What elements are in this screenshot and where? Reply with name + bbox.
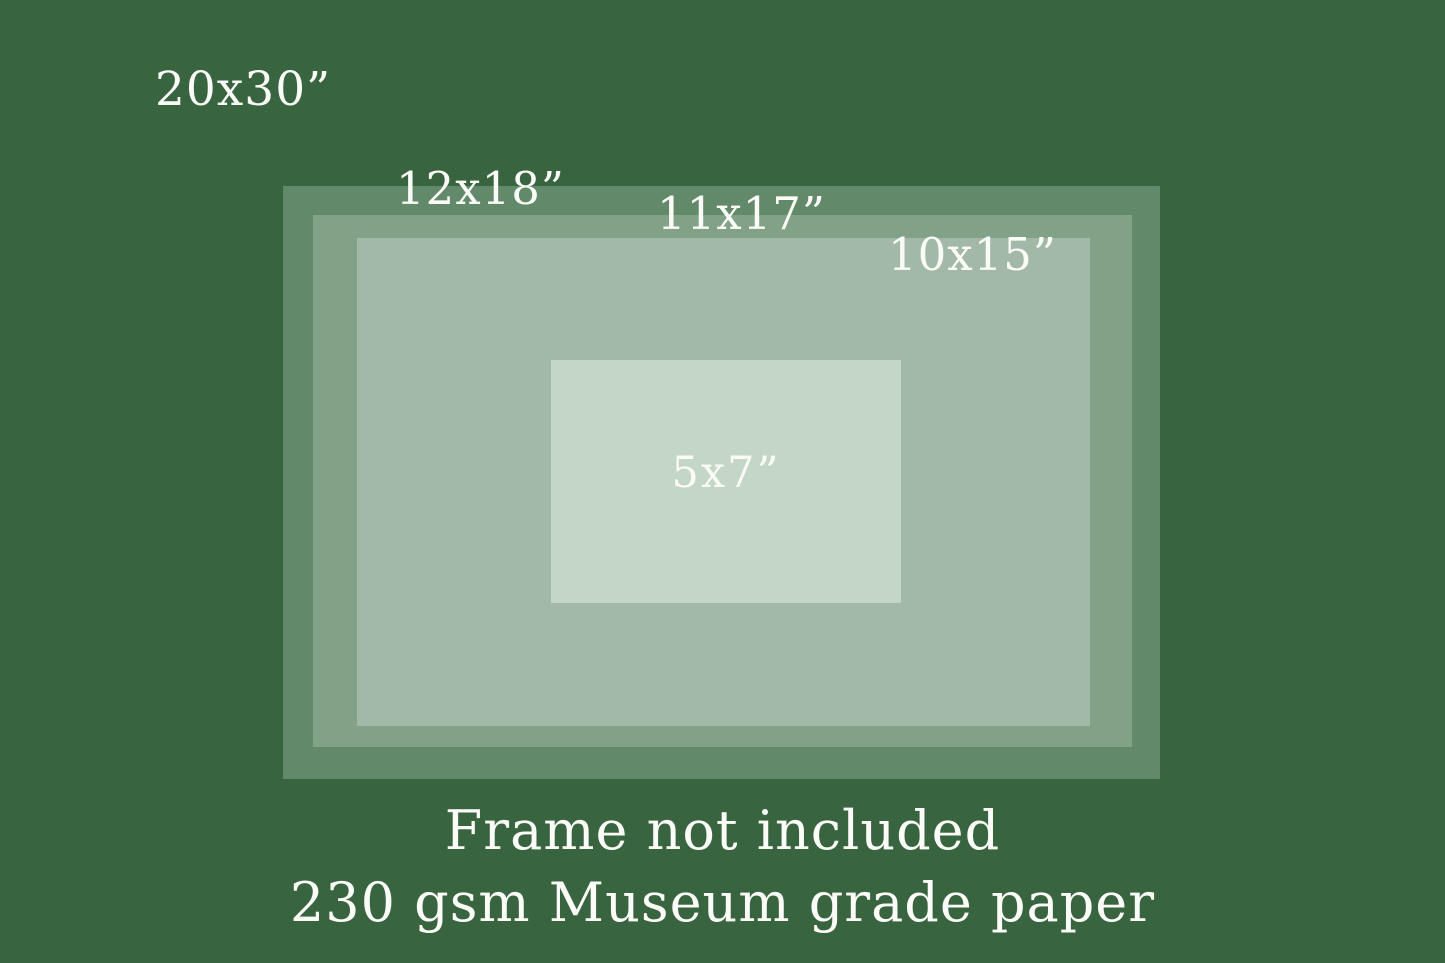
footer-frame-note: Frame not included bbox=[0, 804, 1445, 858]
size-label-10x15: 10x15” bbox=[888, 232, 1057, 277]
size-label-5x7: 5x7” bbox=[551, 452, 901, 495]
size-label-20x30: 20x30” bbox=[155, 66, 331, 113]
size-label-11x17: 11x17” bbox=[657, 191, 826, 236]
size-label-12x18: 12x18” bbox=[396, 166, 565, 211]
footer-paper-note: 230 gsm Museum grade paper bbox=[0, 876, 1445, 930]
size-guide-canvas: 20x30” 12x18” 11x17” 10x15” 5x7” Frame n… bbox=[0, 0, 1445, 963]
